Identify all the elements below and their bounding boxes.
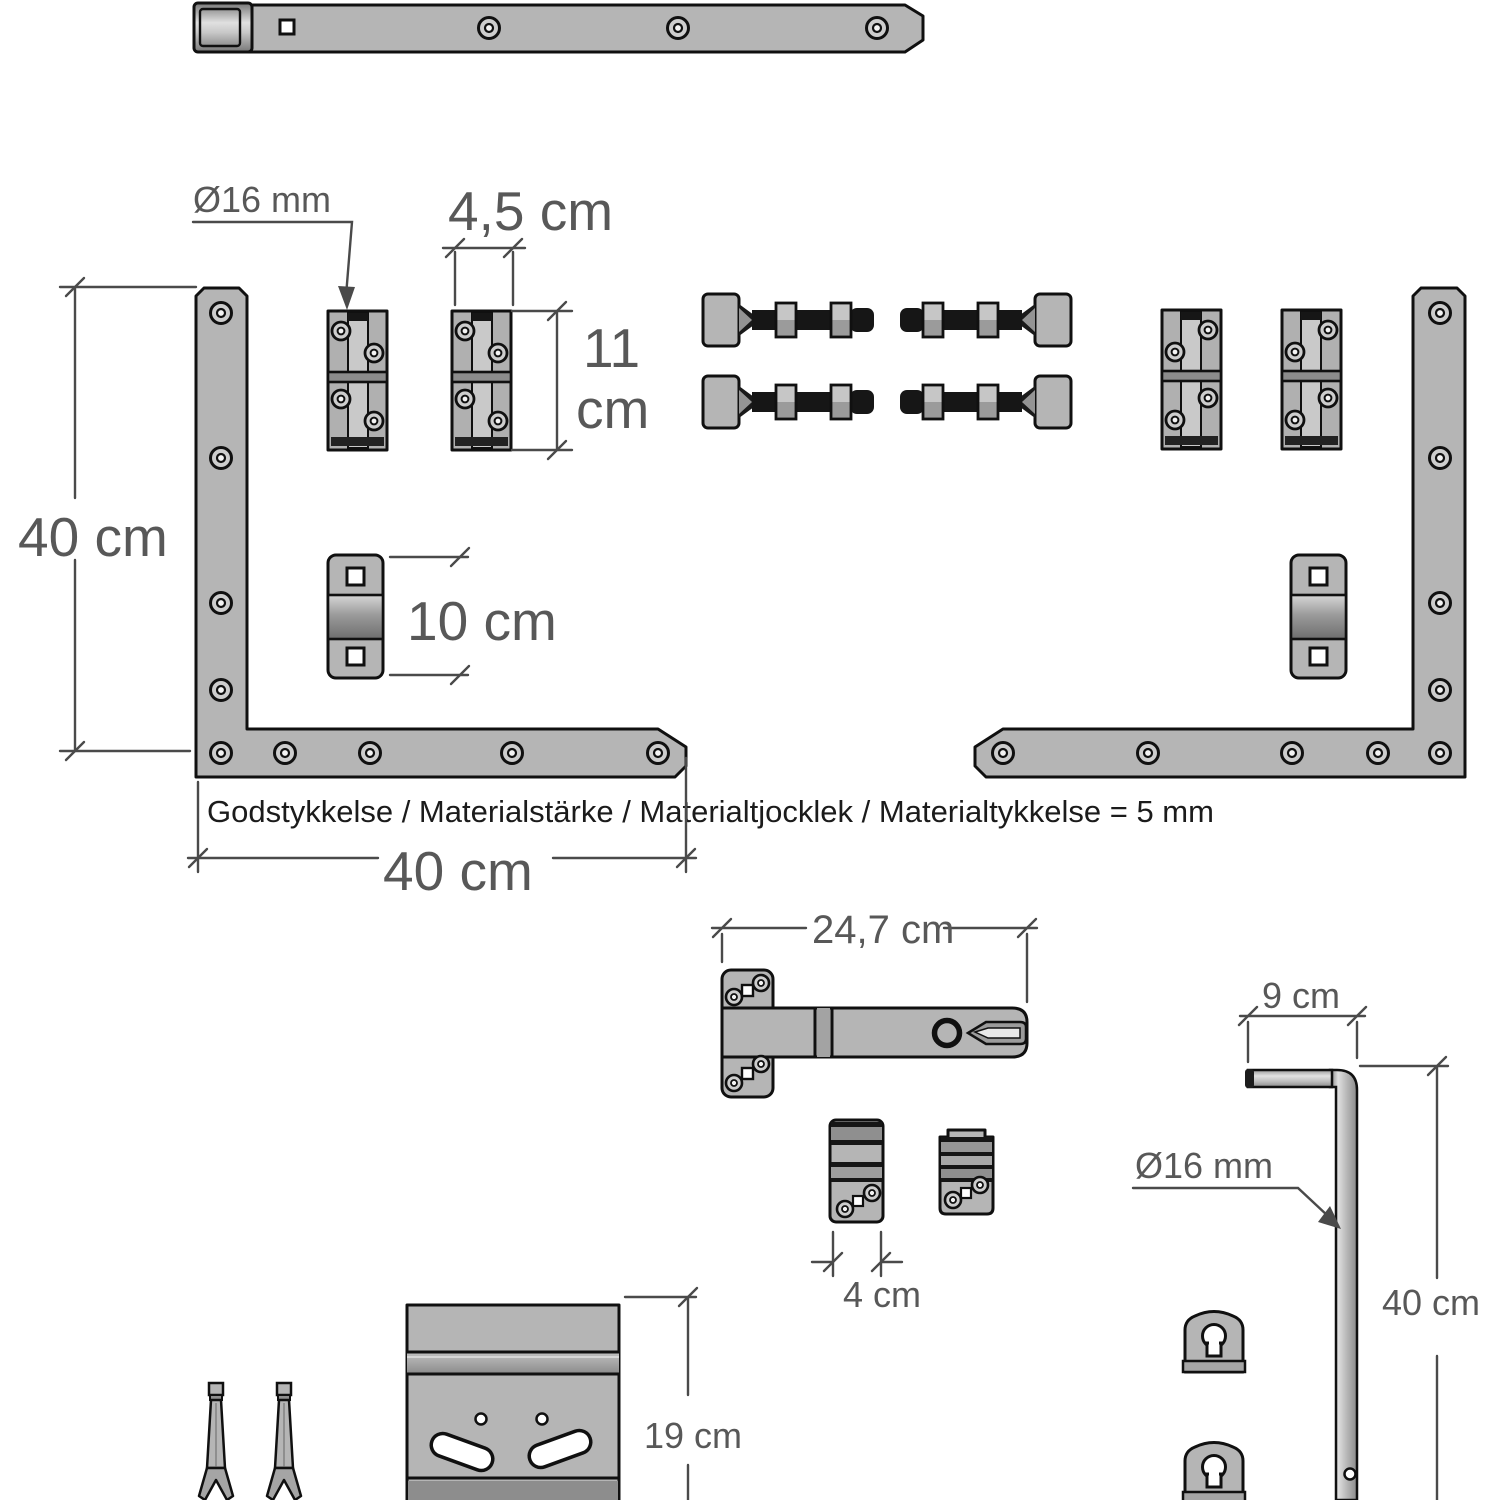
dropbolt-length-label: 40 cm [1382,1282,1480,1323]
strap-square-hole [280,20,294,34]
dim-hinge-height: 11 cm [512,302,649,459]
latch-keeper-2 [940,1130,993,1214]
saddle-bracket-left [328,555,383,678]
rod-guide-bracket-1 [1183,1312,1245,1373]
dropbolt-handle-label: 9 cm [1262,975,1340,1016]
hinge-block-4 [1282,310,1341,449]
material-thickness-note: Godstykkelse / Materialstärke / Material… [207,794,1214,829]
hinge-block-3 [1162,310,1221,449]
leader-arrowhead [338,286,355,310]
dim-plate-height: 19 cm [625,1288,742,1500]
hinge-height-unit: cm [576,378,649,440]
keeper-width-label: 4 cm [843,1274,921,1315]
dim-saddle-length: 10 cm [390,548,557,684]
latch-bar-assembly [722,970,1027,1097]
rod-pin-hole [1345,1469,1356,1480]
adjustment-bolt-4 [900,376,1071,428]
hinge-width-label: 4,5 cm [448,180,613,242]
latch-length-label: 24,7 cm [812,908,954,952]
dropbolt-diameter-label: Ø16 mm [1135,1145,1273,1186]
rod-guide-bracket-2 [1183,1443,1245,1500]
saddle-length-label: 10 cm [407,590,557,652]
anchor-spike-1 [199,1383,233,1500]
hinge-block-2 [452,311,511,450]
dim-bracket-height: 40 cm [18,278,196,760]
dim-dropbolt-length: 40 cm [1360,1057,1480,1500]
adjustment-bolt-3 [900,294,1071,346]
plate-height-label: 19 cm [644,1415,742,1456]
hinge-height-value: 11 [583,317,640,379]
hinge-strap [194,3,923,52]
latch-bolt-hole [935,1021,960,1046]
ground-plate [407,1305,619,1500]
adjustment-bolt-1 [703,294,874,346]
saddle-bracket-right [1291,555,1346,678]
bracket-height-label: 40 cm [18,506,168,568]
dim-dropbolt-diameter: Ø16 mm [1133,1145,1341,1229]
dim-dropbolt-handle: 9 cm [1239,975,1366,1062]
drop-bolt-rod [1245,1069,1357,1500]
pin-diameter-label: Ø16 mm [193,179,331,220]
latch-keeper-1 [830,1120,883,1222]
dim-bracket-width: 40 cm [188,758,696,902]
anchor-spike-2 [267,1383,301,1500]
dim-keeper-width: 4 cm [812,1232,921,1315]
technical-drawing-canvas: Ø16 mm 4,5 cm 11 cm 40 cm 10 cm Godstykk… [0,0,1500,1500]
adjustment-bolt-2 [703,376,874,428]
dim-hinge-width: 4,5 cm [443,180,613,305]
bracket-width-label: 40 cm [383,840,533,902]
gate-hardware-drawing: Ø16 mm 4,5 cm 11 cm 40 cm 10 cm Godstykk… [0,0,1500,1500]
hinge-block-1 [328,311,387,450]
